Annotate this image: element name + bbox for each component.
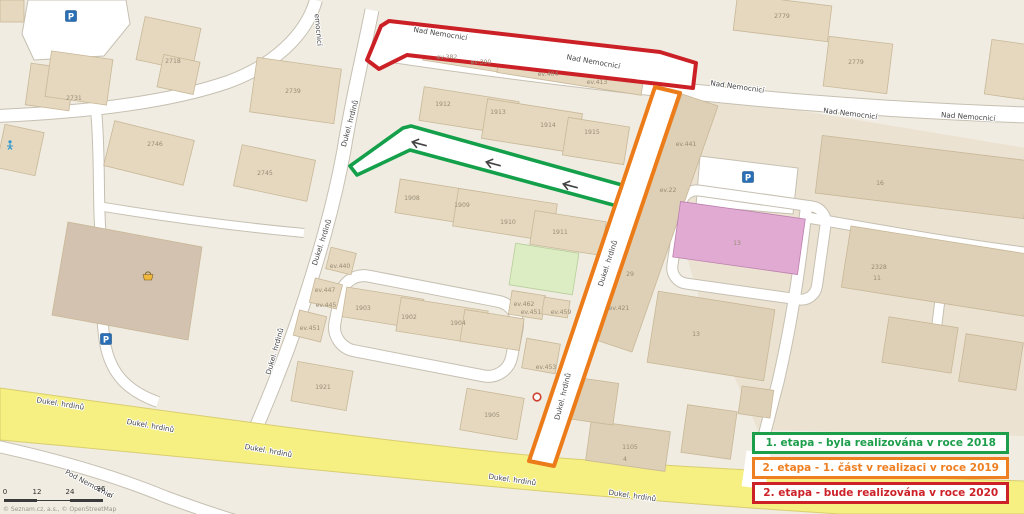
svg-text:P: P [68, 12, 74, 22]
building-label: ev.413 [587, 79, 608, 86]
building-label: ev.404 [538, 71, 559, 78]
poi-red-circle-icon[interactable] [533, 393, 541, 401]
building-label: 11 [873, 275, 881, 282]
building-label: 1911 [552, 229, 568, 236]
legend-item-stage-1: 1. etapa - byla realizována v roce 2018 [752, 432, 1009, 454]
building-label: ev.453 [536, 364, 557, 371]
scale-tick-0: 0 [3, 488, 7, 496]
svg-text:P: P [103, 335, 109, 345]
building-label: 1105 [622, 444, 638, 451]
building-label: ev.421 [609, 305, 630, 312]
building-label: ev.22 [660, 187, 677, 194]
building-label: ev.445 [316, 302, 337, 309]
building-label: 2718 [165, 58, 181, 65]
building-label: ev.451 [300, 325, 321, 332]
building-label: ev.459 [551, 309, 572, 316]
building-label: ev.447 [315, 287, 336, 294]
building-label: 2731 [66, 95, 82, 102]
map-attribution: © Seznam.cz, a.s., © OpenStreetMap [3, 506, 117, 513]
parking-icon[interactable]: P [66, 11, 77, 23]
legend-item-stage-2b: 2. etapa - bude realizována v roce 2020 [752, 482, 1009, 504]
building-label: 1913 [490, 109, 506, 116]
building-label: 4 [623, 456, 627, 463]
building-label: 1904 [450, 320, 466, 327]
building-label: 1915 [584, 129, 600, 136]
building-label: 1909 [454, 202, 470, 209]
building-label: 2739 [285, 88, 301, 95]
building-label: ev.451 [521, 309, 542, 316]
building-label: 1921 [315, 384, 331, 391]
building-label: 2328 [871, 264, 887, 271]
building-label: 2779 [848, 59, 864, 66]
building-label: ev.462 [514, 301, 535, 308]
building-label: 1908 [404, 195, 420, 202]
legend-label-stage-2a: 2. etapa - 1. část v realizaci v roce 20… [762, 462, 999, 474]
building-label: 29 [626, 271, 634, 278]
scale-unit: m [107, 493, 112, 499]
building-label: 16 [876, 180, 884, 187]
svg-text:P: P [745, 173, 751, 183]
map-canvas[interactable]: Nad NemocnicíNad NemocnicíNad NemocnicíN… [0, 0, 1024, 514]
building-label: ev.441 [676, 141, 697, 148]
scale-tick-12: 12 [33, 488, 42, 496]
building-label: 1902 [401, 314, 417, 321]
legend-label-stage-2b: 2. etapa - bude realizována v roce 2020 [763, 487, 998, 499]
parking-icon[interactable]: P [743, 172, 754, 184]
legend-item-stage-2a: 2. etapa - 1. část v realizaci v roce 20… [752, 457, 1009, 479]
legend: 1. etapa - byla realizována v roce 2018 … [752, 432, 1009, 504]
building-label: 1910 [500, 219, 516, 226]
parking-icon[interactable]: P [101, 334, 112, 346]
building-label: 13 [733, 240, 741, 247]
building-label: ev.440 [330, 263, 351, 270]
scale-tick-36: 36 [97, 485, 106, 493]
building-label: ev.382 [437, 54, 458, 61]
building-label: 1914 [540, 122, 556, 129]
legend-label-stage-1: 1. etapa - byla realizována v roce 2018 [766, 437, 996, 449]
building-label: 2779 [774, 13, 790, 20]
building-label: 2746 [147, 141, 163, 148]
building-label: 1903 [355, 305, 371, 312]
scale-tick-24: 24 [66, 488, 75, 496]
building-label: 2745 [257, 170, 273, 177]
building-label: ev.390 [471, 59, 492, 66]
building-label: 1912 [435, 101, 451, 108]
building-label: 13 [692, 331, 700, 338]
building-label: 1905 [484, 412, 500, 419]
